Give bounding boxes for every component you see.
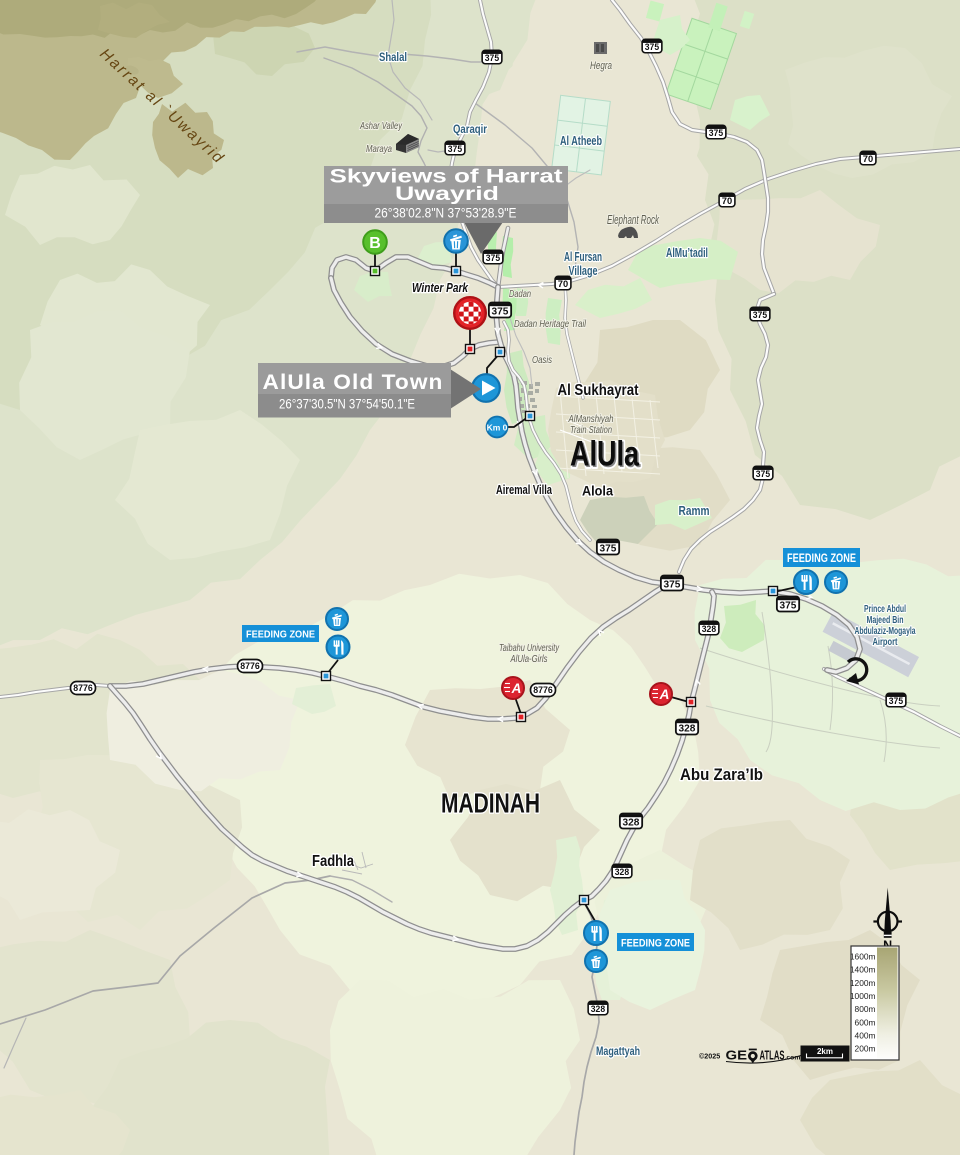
svg-text:328: 328 bbox=[623, 818, 640, 829]
svg-text:Airport: Airport bbox=[873, 636, 898, 648]
svg-text:328: 328 bbox=[679, 724, 696, 735]
svg-text:400m: 400m bbox=[855, 1030, 876, 1040]
svg-text:Fadhla: Fadhla bbox=[312, 853, 354, 870]
svg-text:B: B bbox=[369, 235, 381, 252]
svg-text:375: 375 bbox=[448, 144, 462, 154]
svg-text:Shalal: Shalal bbox=[379, 50, 407, 64]
svg-text:200m: 200m bbox=[855, 1044, 876, 1054]
svg-text:AlMu’tadil: AlMu’tadil bbox=[666, 245, 708, 260]
svg-text:FEEDING ZONE: FEEDING ZONE bbox=[246, 629, 315, 641]
svg-text:1200m: 1200m bbox=[850, 978, 876, 988]
svg-text:375: 375 bbox=[486, 253, 500, 263]
svg-text:Al Sukhayrat: Al Sukhayrat bbox=[558, 382, 639, 399]
svg-text:A: A bbox=[511, 681, 522, 696]
svg-text:Winter Park: Winter Park bbox=[412, 280, 469, 295]
svg-text:328: 328 bbox=[702, 624, 716, 634]
svg-text:Oasis: Oasis bbox=[532, 354, 553, 366]
svg-text:8776: 8776 bbox=[73, 683, 93, 693]
svg-text:Dadan Heritage Trail: Dadan Heritage Trail bbox=[514, 318, 586, 330]
svg-text:375: 375 bbox=[664, 580, 681, 591]
svg-text:375: 375 bbox=[709, 128, 723, 138]
svg-text:Magattyah: Magattyah bbox=[596, 1044, 640, 1058]
svg-text:Maraya: Maraya bbox=[366, 143, 392, 155]
svg-text:AlUla-Girls: AlUla-Girls bbox=[510, 653, 548, 665]
svg-text:70: 70 bbox=[863, 154, 873, 164]
svg-text:70: 70 bbox=[558, 279, 568, 289]
svg-text:26°37'30.5"N 37°54'50.1"E: 26°37'30.5"N 37°54'50.1"E bbox=[279, 397, 415, 412]
svg-text:Elephant Rock: Elephant Rock bbox=[607, 213, 659, 227]
svg-text:©2025: ©2025 bbox=[699, 1052, 720, 1061]
svg-text:26°38'02.8"N 37°53'28.9"E: 26°38'02.8"N 37°53'28.9"E bbox=[375, 206, 517, 221]
svg-text:Al Atheeb: Al Atheeb bbox=[560, 134, 602, 148]
svg-text:8776: 8776 bbox=[240, 661, 260, 671]
svg-text:1400m: 1400m bbox=[850, 965, 876, 975]
svg-text:GE: GE bbox=[726, 1048, 748, 1063]
svg-text:Uwayrid: Uwayrid bbox=[395, 184, 499, 205]
svg-text:Qaraqir: Qaraqir bbox=[453, 122, 487, 136]
svg-text:1600m: 1600m bbox=[850, 952, 876, 962]
svg-text:Hegra: Hegra bbox=[590, 60, 612, 72]
svg-text:Abu Zara’Ib: Abu Zara’Ib bbox=[680, 765, 763, 784]
svg-text:375: 375 bbox=[645, 42, 659, 52]
svg-text:328: 328 bbox=[591, 1004, 605, 1014]
svg-text:375: 375 bbox=[485, 53, 499, 63]
svg-text:Airemal Villa: Airemal Villa bbox=[496, 483, 553, 497]
svg-text:70: 70 bbox=[722, 196, 732, 206]
svg-text:Village: Village bbox=[569, 264, 598, 278]
svg-text:Dadan: Dadan bbox=[509, 288, 531, 300]
svg-text:Al Fursan: Al Fursan bbox=[564, 250, 602, 264]
svg-text:328: 328 bbox=[615, 867, 629, 877]
svg-text:A: A bbox=[659, 687, 670, 702]
svg-text:FEEDING ZONE: FEEDING ZONE bbox=[621, 938, 690, 950]
svg-text:Ashar Valley: Ashar Valley bbox=[359, 120, 402, 132]
svg-text:375: 375 bbox=[753, 310, 767, 320]
svg-text:Ramm: Ramm bbox=[679, 503, 710, 518]
svg-text:FEEDING ZONE: FEEDING ZONE bbox=[787, 553, 856, 565]
svg-text:375: 375 bbox=[889, 696, 903, 706]
svg-text:1000m: 1000m bbox=[850, 991, 876, 1001]
svg-text:375: 375 bbox=[492, 307, 509, 318]
svg-text:Km 0: Km 0 bbox=[487, 423, 508, 433]
svg-text:AlUla Old Town: AlUla Old Town bbox=[263, 371, 444, 394]
svg-text:800m: 800m bbox=[855, 1004, 876, 1014]
svg-text:375: 375 bbox=[756, 469, 770, 479]
svg-text:Alola: Alola bbox=[582, 484, 613, 499]
svg-text:600m: 600m bbox=[855, 1017, 876, 1027]
svg-text:2km: 2km bbox=[817, 1047, 833, 1056]
svg-text:MADINAH: MADINAH bbox=[441, 788, 540, 819]
svg-text:8776: 8776 bbox=[533, 685, 553, 695]
svg-text:375: 375 bbox=[600, 544, 617, 555]
svg-text:AlUla: AlUla bbox=[570, 435, 639, 474]
svg-text:375: 375 bbox=[780, 601, 797, 612]
